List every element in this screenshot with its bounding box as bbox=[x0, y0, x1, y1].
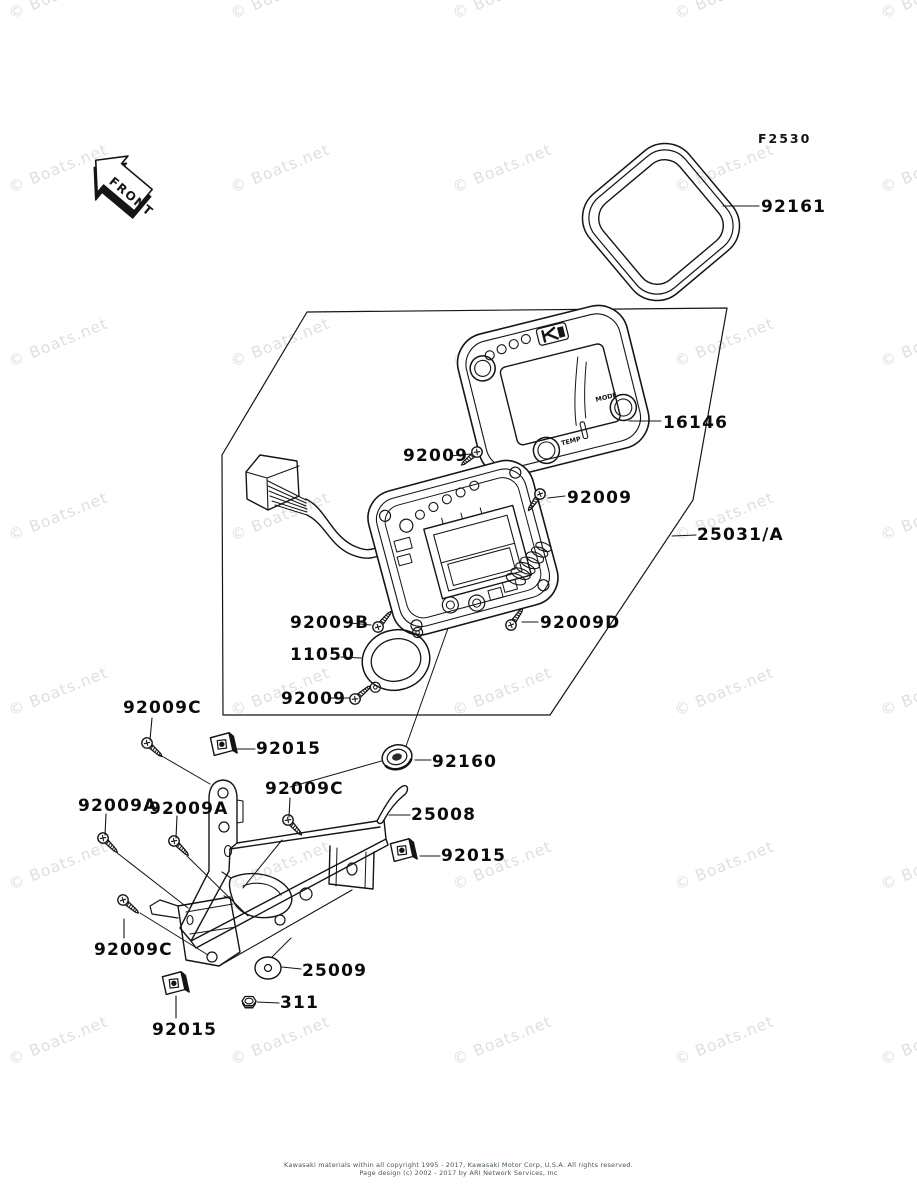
clip-92015-3 bbox=[162, 971, 189, 994]
part-label-92015: 92015 bbox=[256, 739, 321, 759]
diagram-line-art: FRONT bbox=[0, 0, 917, 1200]
part-label-25008: 25008 bbox=[411, 805, 476, 825]
part-label-11050: 11050 bbox=[290, 645, 355, 665]
part-label-92009c: 92009C bbox=[123, 698, 202, 718]
front-direction-arrow: FRONT bbox=[76, 142, 170, 233]
clip-92015-1 bbox=[210, 732, 237, 755]
part-label-92009c: 92009C bbox=[265, 779, 344, 799]
screw-92009a-1 bbox=[96, 831, 121, 856]
screw-92009-ring bbox=[348, 682, 374, 706]
part-label-92009d: 92009D bbox=[540, 613, 620, 633]
part-nut-311 bbox=[242, 997, 256, 1009]
part-label-92015: 92015 bbox=[152, 1020, 217, 1040]
diagram-code: F2530 bbox=[758, 131, 811, 146]
copyright-line-2: Page design (c) 2002 - 2017 by ARI Netwo… bbox=[0, 1169, 917, 1177]
parts-diagram-page: © Boats.net© Boats.net© Boats.net© Boats… bbox=[0, 0, 917, 1200]
part-label-92009c: 92009C bbox=[94, 940, 173, 960]
clip-92015-2 bbox=[390, 838, 417, 861]
part-label-92160: 92160 bbox=[432, 752, 497, 772]
part-label-92015: 92015 bbox=[441, 846, 506, 866]
part-bezel-92161 bbox=[569, 130, 752, 313]
part-label-92009: 92009 bbox=[567, 488, 632, 508]
part-label-16146: 16146 bbox=[663, 413, 728, 433]
part-label-92161: 92161 bbox=[761, 197, 826, 217]
part-label-92009: 92009 bbox=[403, 446, 468, 466]
screw-92009c-3 bbox=[116, 893, 142, 917]
screw-92009a-2 bbox=[167, 834, 192, 859]
part-washer-25009 bbox=[255, 957, 281, 979]
part-meter-assembly-25031 bbox=[362, 454, 566, 641]
part-label-92009b: 92009B bbox=[290, 613, 369, 633]
part-label-25031a: 25031/A bbox=[697, 525, 784, 545]
part-grommet-92160 bbox=[379, 742, 414, 773]
part-label-25009: 25009 bbox=[302, 961, 367, 981]
part-label-92009a: 92009A bbox=[78, 796, 158, 816]
wiring-connector bbox=[246, 455, 384, 558]
screw-92009c-1 bbox=[140, 736, 166, 761]
part-label-92009: 92009 bbox=[281, 689, 346, 709]
part-label-92009a: 92009A bbox=[149, 799, 229, 819]
part-label-311: 311 bbox=[280, 993, 319, 1013]
copyright-line-1: Kawasaki materials within all copyright … bbox=[0, 1161, 917, 1169]
